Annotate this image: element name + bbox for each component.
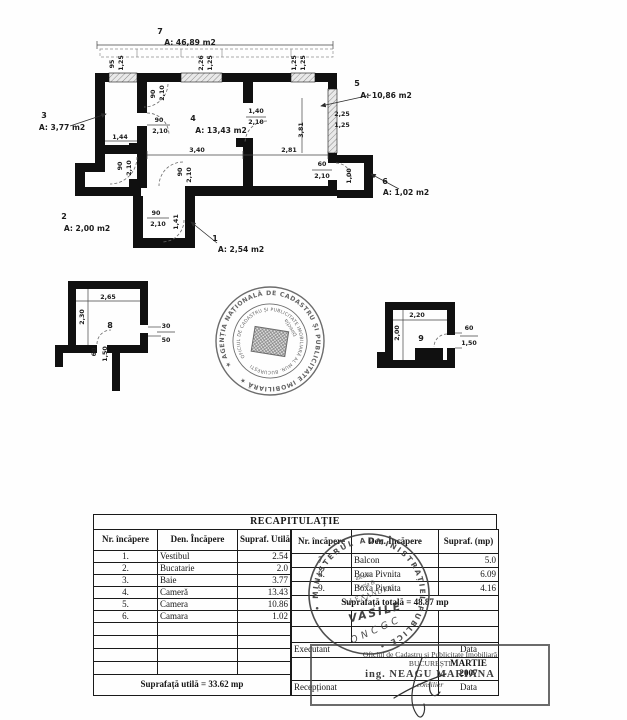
dimension-label: 3,40 (189, 147, 205, 154)
dimension-label: 1,50 (102, 346, 109, 362)
cell-den: Baie (158, 575, 238, 587)
dimension-label: 1,40 (248, 108, 264, 115)
dimension-label: 50 (162, 337, 171, 344)
date-year: 2007 (441, 669, 496, 678)
dimension-label: 1,00 (346, 168, 353, 184)
cell-den: Camara (158, 611, 238, 623)
empty-row (94, 623, 291, 636)
room-area-label: A: 3,77 m2 (39, 123, 85, 132)
cell-den: Balcon (352, 554, 439, 568)
room-number-label: 4 (190, 114, 196, 123)
cell-supraf: 1.02 (238, 611, 291, 623)
recap-title: RECAPITULAȚIE (93, 514, 497, 529)
empty-row (292, 626, 499, 642)
table-row: 6. Camara 1.02 (94, 611, 291, 623)
dimension-label: 2,10 (186, 167, 193, 183)
room-number-label: 8 (107, 321, 113, 330)
cell-nr: 1. (94, 551, 158, 563)
executant-label: Executant (292, 642, 439, 657)
dimension-label: 90 (150, 89, 157, 98)
cell-den: Boxa Pivnita (352, 568, 439, 582)
agency-round-stamp: ★ AGENȚIA NAȚIONALĂ DE CADASTRU ȘI PUBLI… (195, 266, 344, 415)
room-area-label: A: 10,86 m2 (360, 91, 412, 100)
dimension-label: 1,25 (118, 55, 125, 71)
cell-nr: 7. (292, 554, 352, 568)
dimension-label: 2,25 (334, 111, 350, 118)
dimension-label: 60 (318, 161, 327, 168)
dimension-label: 2,30 (79, 309, 86, 325)
room-area-label: A: 2,00 m2 (64, 224, 110, 233)
total-line: Suprafață totală = 48.87 mp (292, 595, 499, 610)
dimension-label: 1,50 (461, 340, 477, 347)
dimension-label: 2,65 (100, 294, 116, 301)
cell-supraf: 10.86 (238, 599, 291, 611)
header-supraf-right: Supraf. (mp) (439, 530, 499, 554)
dimension-label: 2,10 (248, 119, 264, 126)
room-number-label: 3 (41, 111, 47, 120)
dimension-label: 1,25 (334, 122, 350, 129)
dimension-label: 95 (109, 60, 116, 69)
cell-supraf: 13.43 (238, 587, 291, 599)
dimension-label: 90 (152, 210, 161, 217)
room-area-label: A: 46,89 m2 (164, 38, 216, 47)
scanned-floor-plan-sheet: 7A: 46,89 m2951,252,261,251,251,25902,10… (0, 0, 627, 720)
empty-row (94, 636, 291, 649)
dimension-label: 2,26 (198, 55, 205, 71)
cell-nr: 8. (292, 568, 352, 582)
data-label: Data (439, 642, 499, 657)
header-nr-left: Nr. încăpere (94, 530, 158, 551)
empty-row (94, 649, 291, 662)
header-supraf-left: Supraf. Utilă (mp) (238, 530, 291, 551)
footer-suprafata-utila: Suprafață utilă = 33.62 mp (94, 675, 291, 696)
dimension-label: 2,20 (409, 312, 425, 319)
dimension-label: 90 (177, 167, 184, 176)
room-area-label: A: 2,54 m2 (218, 245, 264, 254)
empty-row (292, 610, 499, 626)
room-area-label: A: 1,02 m2 (383, 188, 429, 197)
recap-left-table: Nr. încăpere Den. Încăpere Supraf. Utilă… (93, 529, 291, 696)
dimension-label: 60 (91, 347, 98, 356)
table-row: 7. Balcon 5.0 (292, 554, 499, 568)
cell-supraf: 2.0 (238, 563, 291, 575)
header-den-left: Den. Încăpere (158, 530, 238, 551)
cell-supraf: 5.0 (439, 554, 499, 568)
dimension-label: 30 (162, 323, 171, 330)
table-row: 5. Camera 10.86 (94, 599, 291, 611)
cell-den: Camera (158, 599, 238, 611)
dimension-label: 90 (155, 117, 164, 124)
cell-supraf: 6.09 (439, 568, 499, 582)
header-den-right: Den. Încăpere (352, 530, 439, 554)
cell-nr: 2. (94, 563, 158, 575)
table-row: 1. Vestibul 2.54 (94, 551, 291, 563)
header-nr-right: Nr. încăpere (292, 530, 352, 554)
dimension-label: 3,81 (298, 122, 305, 138)
room-number-label: 9 (418, 334, 424, 343)
cell-nr: 4. (94, 587, 158, 599)
dimension-label: 60 (465, 325, 474, 332)
table-row: 2. Bucatarie 2.0 (94, 563, 291, 575)
dimension-label: 2,10 (126, 160, 133, 176)
dimension-label: 2,10 (150, 221, 166, 228)
cell-den: Vestibul (158, 551, 238, 563)
dimension-label: 90 (117, 161, 124, 170)
receptionat-label: Recepționat (292, 680, 439, 695)
room-area-label: A: 13,43 m2 (195, 126, 247, 135)
signature-cell (292, 657, 439, 680)
date-cell: MARTIE 2007 (439, 657, 499, 680)
dimension-label: 1,44 (112, 134, 128, 141)
cell-den: Cameră (158, 587, 238, 599)
table-row: 9. Boxa Pivnita 4.16 (292, 581, 499, 595)
dimension-label: 1,41 (173, 214, 180, 230)
dimension-label: 2,81 (281, 147, 297, 154)
cell-den: Boxa Pivnita (352, 581, 439, 595)
cell-supraf: 2.54 (238, 551, 291, 563)
room-number-label: 6 (382, 177, 388, 186)
agency-stamp-emblem (251, 326, 288, 356)
recap-table: RECAPITULAȚIE Nr. încăpere Den. Încăpere… (93, 514, 497, 696)
dimension-label: 1,25 (207, 55, 214, 71)
room-number-label: 5 (354, 79, 360, 88)
recap-right-table: Nr. încăpere Den. Încăpere Supraf. (mp) … (291, 529, 499, 696)
dimension-label: 2,00 (394, 325, 401, 341)
cell-supraf: 4.16 (439, 581, 499, 595)
data-label-2: Data (439, 680, 499, 695)
dimension-label: 2,10 (152, 128, 168, 135)
cell-nr: 6. (94, 611, 158, 623)
table-row: 3. Baie 3.77 (94, 575, 291, 587)
dimension-label: 2,10 (314, 173, 330, 180)
room-number-label: 7 (157, 27, 163, 36)
room-number-label: 1 (212, 234, 218, 243)
dimension-label: 2,10 (159, 85, 166, 101)
empty-row (94, 662, 291, 675)
dimension-label: 1,25 (300, 55, 307, 71)
cell-nr: 5. (94, 599, 158, 611)
cell-supraf: 3.77 (238, 575, 291, 587)
table-row: 4. Cameră 13.43 (94, 587, 291, 599)
cell-nr: 9. (292, 581, 352, 595)
room-number-label: 2 (61, 212, 67, 221)
dimension-label: 1,25 (291, 55, 298, 71)
cell-nr: 3. (94, 575, 158, 587)
table-row: 8. Boxa Pivnita 6.09 (292, 568, 499, 582)
floor-plan: 7A: 46,89 m2951,252,261,251,251,25902,10… (0, 0, 627, 505)
cell-den: Bucatarie (158, 563, 238, 575)
